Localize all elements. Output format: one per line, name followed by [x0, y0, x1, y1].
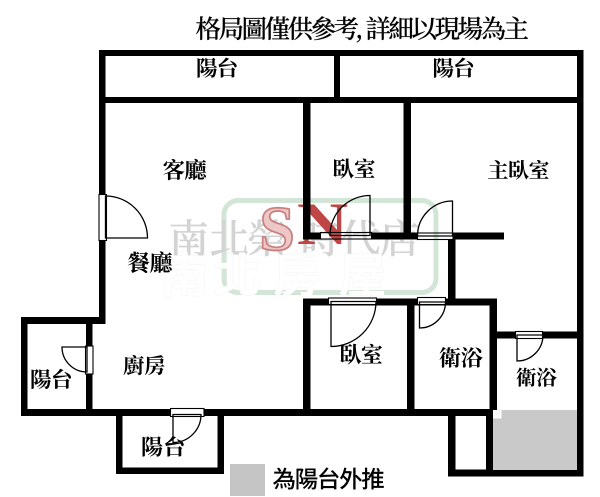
- svg-text:N: N: [297, 192, 348, 258]
- svg-text:S: S: [259, 193, 295, 264]
